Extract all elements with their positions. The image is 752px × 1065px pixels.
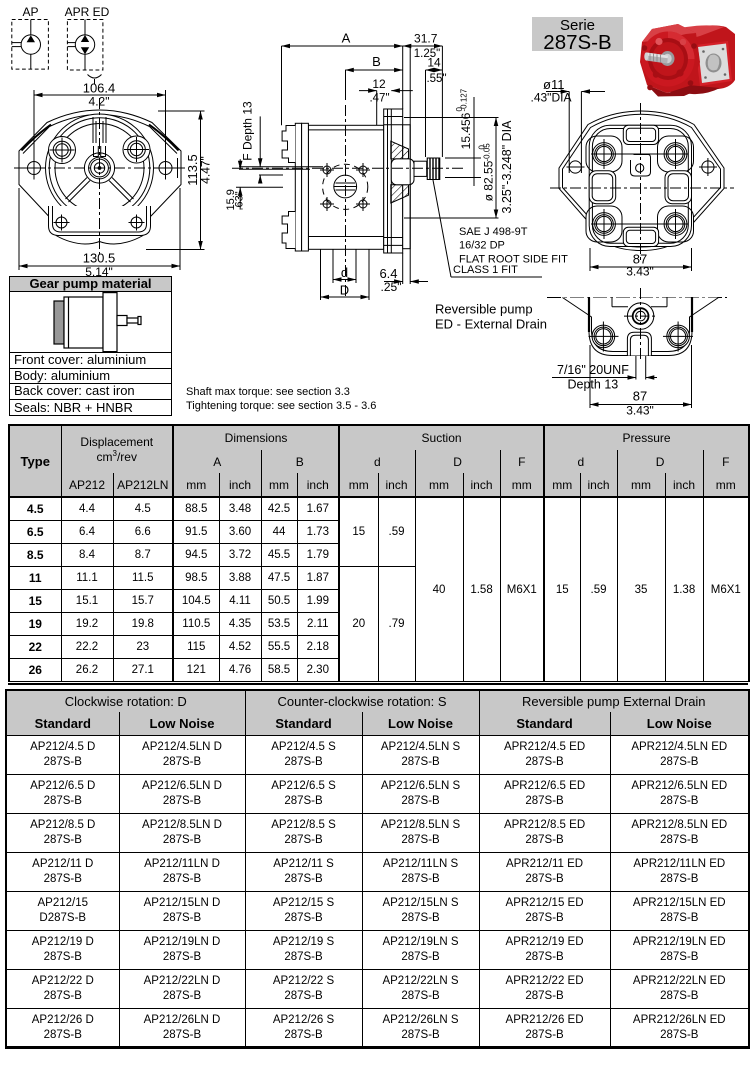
svg-text:Depth 13: Depth 13 xyxy=(568,378,619,392)
svg-text:31.7: 31.7 xyxy=(414,32,438,46)
svg-text:ED - External Drain: ED - External Drain xyxy=(435,317,547,332)
svg-text:.55": .55" xyxy=(426,73,446,85)
svg-text:A: A xyxy=(342,31,351,46)
svg-text:3.25"-3.248" DIA: 3.25"-3.248" DIA xyxy=(500,120,514,214)
svg-text:-0.127: -0.127 xyxy=(460,88,469,111)
svg-text:Reversible pump: Reversible pump xyxy=(435,302,533,317)
svg-text:130.5: 130.5 xyxy=(83,251,116,266)
svg-text:AP: AP xyxy=(22,5,38,19)
svg-text:.47": .47" xyxy=(369,93,389,105)
svg-text:3.43": 3.43" xyxy=(626,404,654,418)
svg-text:12: 12 xyxy=(372,77,386,91)
svg-text:ø 82.55: ø 82.55 xyxy=(482,160,496,201)
svg-text:APR ED: APR ED xyxy=(65,5,110,19)
svg-text:.25": .25" xyxy=(381,280,402,294)
svg-text:.43"DIA: .43"DIA xyxy=(531,91,572,105)
svg-text:F Depth 13: F Depth 13 xyxy=(241,101,255,161)
svg-text:B: B xyxy=(372,54,381,69)
svg-text:87: 87 xyxy=(633,389,647,404)
svg-text:16/32 DP: 16/32 DP xyxy=(459,240,505,252)
svg-text:-0.05: -0.05 xyxy=(483,143,492,162)
svg-text:CLASS 1 FIT: CLASS 1 FIT xyxy=(453,264,518,276)
svg-text:D: D xyxy=(340,283,349,298)
svg-text:d: d xyxy=(341,265,348,280)
svg-text:7/16" 20UNF: 7/16" 20UNF xyxy=(557,363,629,377)
svg-text:SAE J 498-9T: SAE J 498-9T xyxy=(459,226,528,238)
svg-text:6.4: 6.4 xyxy=(379,266,397,281)
svg-text:4.2": 4.2" xyxy=(89,95,110,109)
svg-text:106.4: 106.4 xyxy=(83,81,116,96)
svg-text:14: 14 xyxy=(427,56,441,70)
svg-text:.63": .63" xyxy=(234,191,246,210)
